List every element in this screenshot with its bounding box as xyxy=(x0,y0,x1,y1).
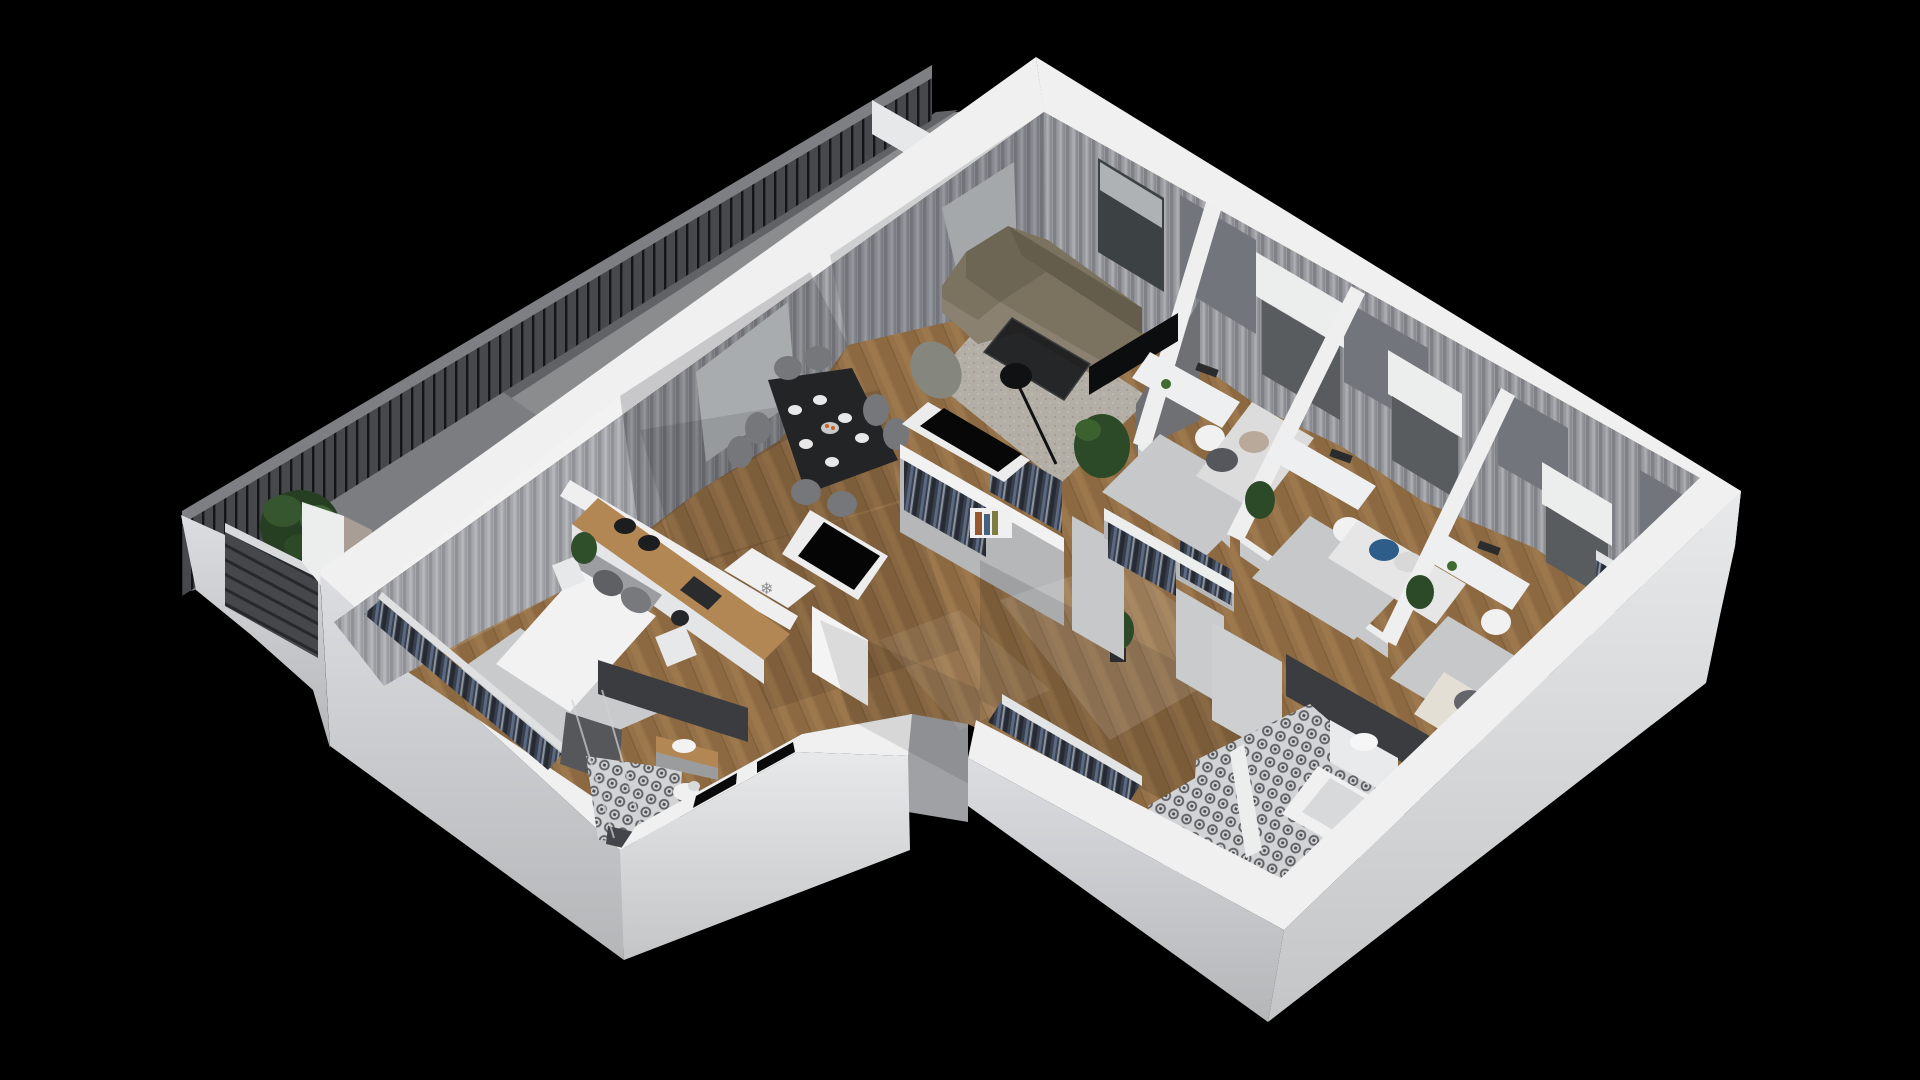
svg-text:❄: ❄ xyxy=(760,581,773,598)
